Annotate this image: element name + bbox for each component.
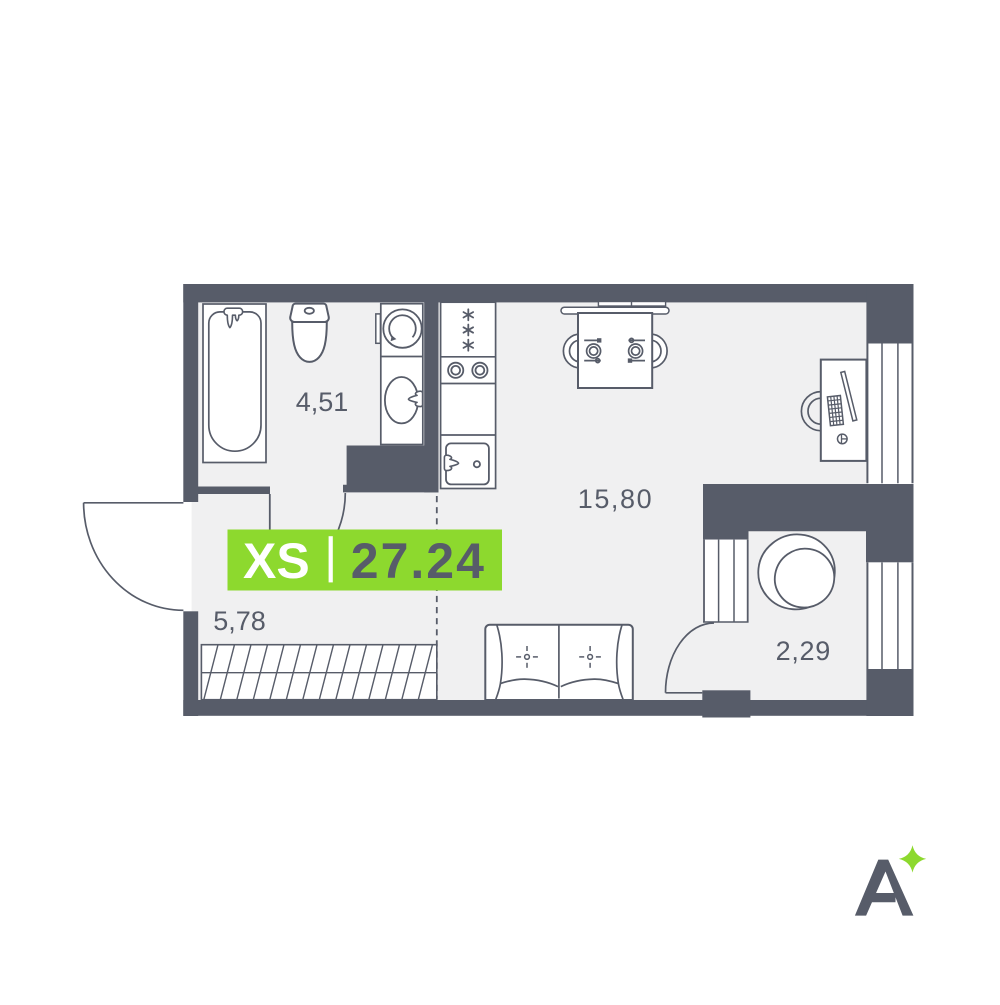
svg-text:15,80: 15,80: [578, 484, 654, 514]
svg-text:2,29: 2,29: [776, 636, 831, 666]
svg-text:4,51: 4,51: [296, 387, 349, 417]
svg-text:XS: XS: [243, 533, 310, 589]
svg-text:27.24: 27.24: [351, 533, 486, 589]
svg-text:5,78: 5,78: [213, 606, 266, 636]
